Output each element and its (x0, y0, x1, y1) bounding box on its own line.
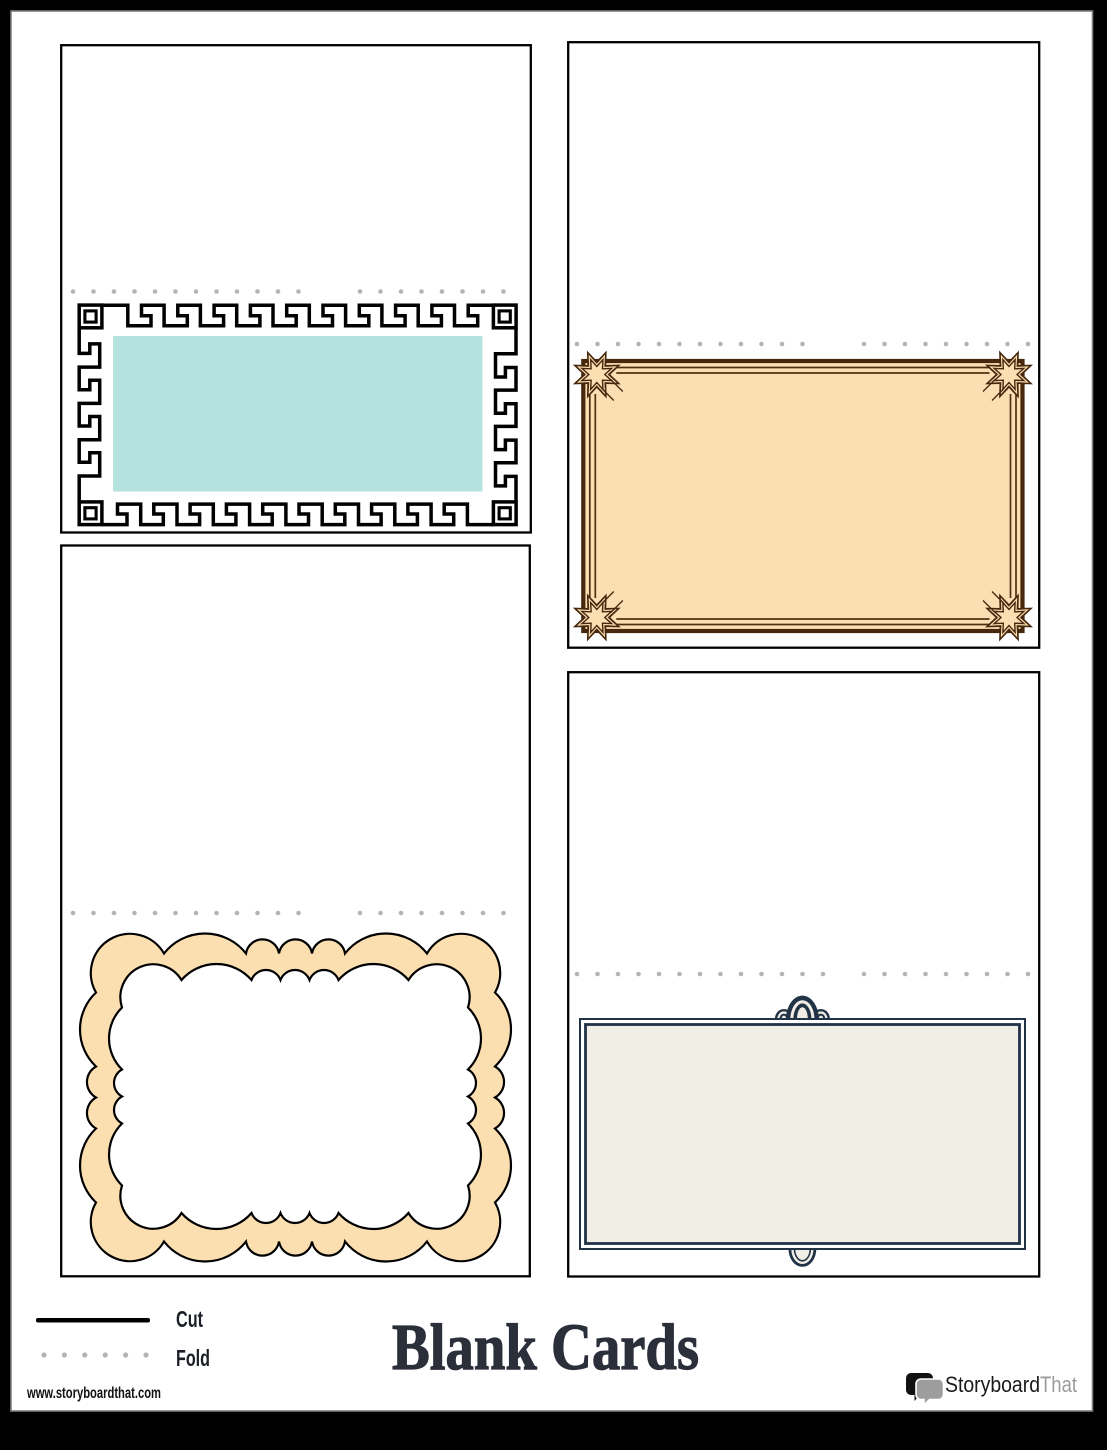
svg-text:That: That (1040, 1372, 1077, 1397)
svg-text:Blank Cards: Blank Cards (392, 1311, 699, 1384)
svg-text:Fold: Fold (176, 1345, 210, 1371)
svg-text:www.storyboardthat.com: www.storyboardthat.com (26, 1385, 161, 1402)
svg-text:Storyboard: Storyboard (945, 1372, 1040, 1397)
svg-text:Cut: Cut (176, 1306, 203, 1332)
